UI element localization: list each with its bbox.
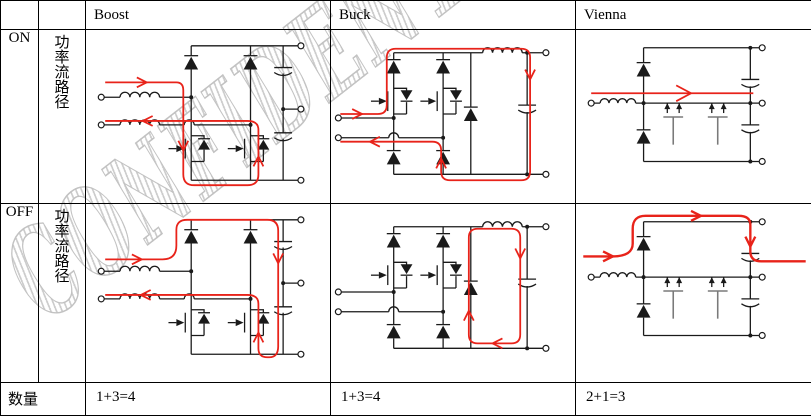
char-lv: 率 bbox=[54, 51, 69, 66]
buck-off-circuit bbox=[332, 204, 575, 376]
char-jing: 径 bbox=[54, 270, 69, 285]
quantity-boost: 1+3=4 bbox=[86, 383, 331, 416]
header-row: Boost Buck Vienna bbox=[1, 1, 811, 30]
quantity-row: 数量 1+3=4 1+3=4 2+1=3 bbox=[1, 383, 811, 416]
quantity-buck: 1+3=4 bbox=[331, 383, 576, 416]
header-vienna: Vienna bbox=[576, 1, 811, 30]
char-lu: 路 bbox=[54, 81, 69, 96]
boost-on-circuit bbox=[87, 30, 330, 202]
char-gong: 功 bbox=[54, 36, 69, 51]
char-lu: 路 bbox=[54, 255, 69, 270]
buck-off-cell bbox=[331, 204, 576, 383]
buck-on-circuit bbox=[332, 30, 575, 202]
header-empty-cell-1 bbox=[1, 1, 39, 30]
power-flow-path-label-on: 功 率 流 路 径 bbox=[39, 30, 86, 204]
quantity-label: 数量 bbox=[1, 383, 86, 416]
quantity-vienna: 2+1=3 bbox=[576, 383, 811, 416]
header-buck: Buck bbox=[331, 1, 576, 30]
topology-comparison-table: Boost Buck Vienna ON 功 率 流 路 径 bbox=[0, 0, 811, 416]
char-liu: 流 bbox=[54, 66, 69, 81]
vienna-off-circuit bbox=[577, 204, 810, 376]
boost-off-cell bbox=[86, 204, 331, 383]
state-off-label: OFF bbox=[1, 204, 39, 383]
vienna-off-cell bbox=[576, 204, 811, 383]
document-page: CONFIDENTIAL bbox=[0, 0, 811, 417]
buck-on-cell bbox=[331, 30, 576, 204]
boost-on-cell bbox=[86, 30, 331, 204]
vienna-on-circuit bbox=[577, 30, 810, 202]
header-boost: Boost bbox=[86, 1, 331, 30]
char-liu: 流 bbox=[54, 240, 69, 255]
state-on-label: ON bbox=[1, 30, 39, 204]
header-empty-cell-2 bbox=[39, 1, 86, 30]
boost-off-circuit bbox=[87, 204, 330, 376]
off-row: OFF 功 率 流 路 径 bbox=[1, 204, 811, 383]
on-row: ON 功 率 流 路 径 bbox=[1, 30, 811, 204]
char-lv: 率 bbox=[54, 225, 69, 240]
power-flow-path-label-off: 功 率 流 路 径 bbox=[39, 204, 86, 383]
vienna-on-cell bbox=[576, 30, 811, 204]
char-gong: 功 bbox=[54, 210, 69, 225]
char-jing: 径 bbox=[54, 96, 69, 111]
